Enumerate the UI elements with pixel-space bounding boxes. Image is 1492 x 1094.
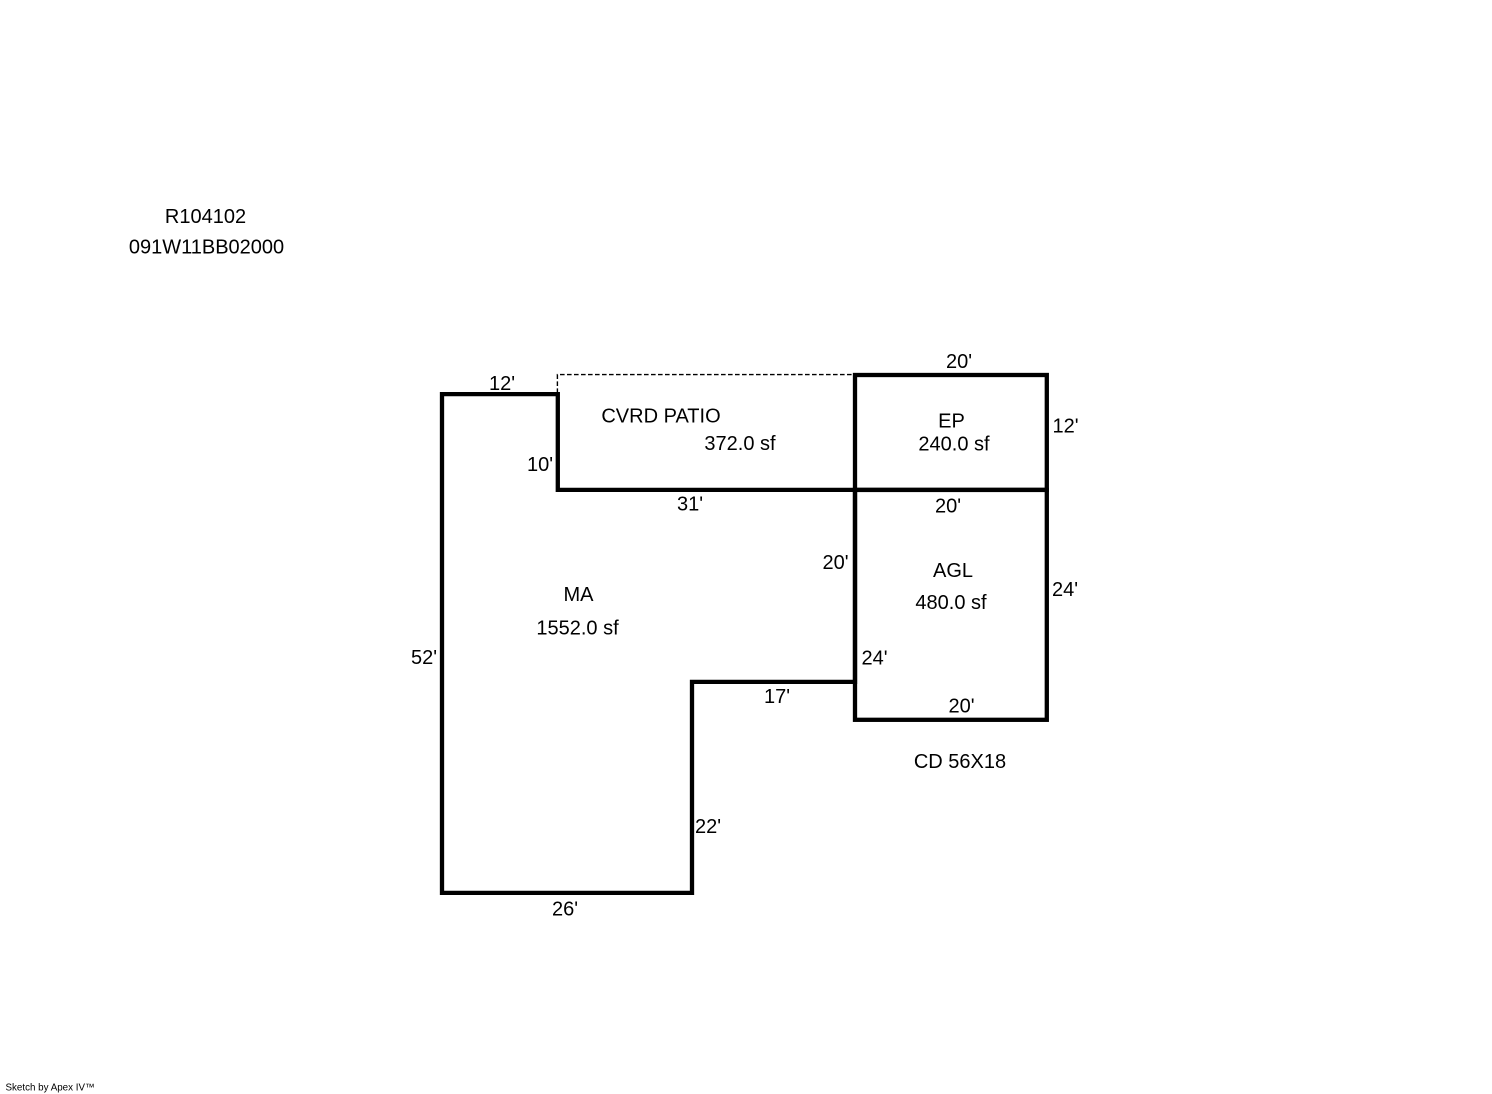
svg-text:480.0 sf: 480.0 sf [915, 592, 987, 614]
svg-text:20': 20' [948, 696, 974, 718]
svg-text:1552.0 sf: 1552.0 sf [536, 618, 619, 640]
svg-text:24': 24' [1052, 579, 1078, 601]
svg-text:12': 12' [489, 373, 515, 395]
svg-text:240.0 sf: 240.0 sf [918, 434, 990, 456]
svg-text:20': 20' [822, 552, 848, 574]
svg-text:091W11BB02000: 091W11BB02000 [129, 237, 284, 259]
svg-text:12': 12' [1052, 416, 1078, 438]
svg-text:MA: MA [564, 584, 595, 606]
svg-text:10': 10' [527, 454, 553, 476]
svg-text:20': 20' [935, 496, 961, 518]
svg-text:24': 24' [861, 648, 887, 670]
svg-text:372.0 sf: 372.0 sf [704, 433, 776, 455]
svg-text:26': 26' [552, 899, 578, 921]
svg-text:17': 17' [764, 686, 790, 708]
svg-text:52': 52' [411, 647, 437, 669]
svg-text:31': 31' [677, 494, 703, 516]
svg-text:EP: EP [938, 411, 965, 433]
svg-text:22': 22' [695, 816, 721, 838]
svg-text:Sketch by Apex IV™: Sketch by Apex IV™ [6, 1083, 95, 1094]
svg-text:AGL: AGL [933, 560, 973, 582]
svg-text:CD 56X18: CD 56X18 [914, 751, 1006, 773]
svg-text:R104102: R104102 [165, 206, 246, 228]
svg-text:20': 20' [946, 351, 972, 373]
svg-text:CVRD PATIO: CVRD PATIO [601, 406, 720, 428]
